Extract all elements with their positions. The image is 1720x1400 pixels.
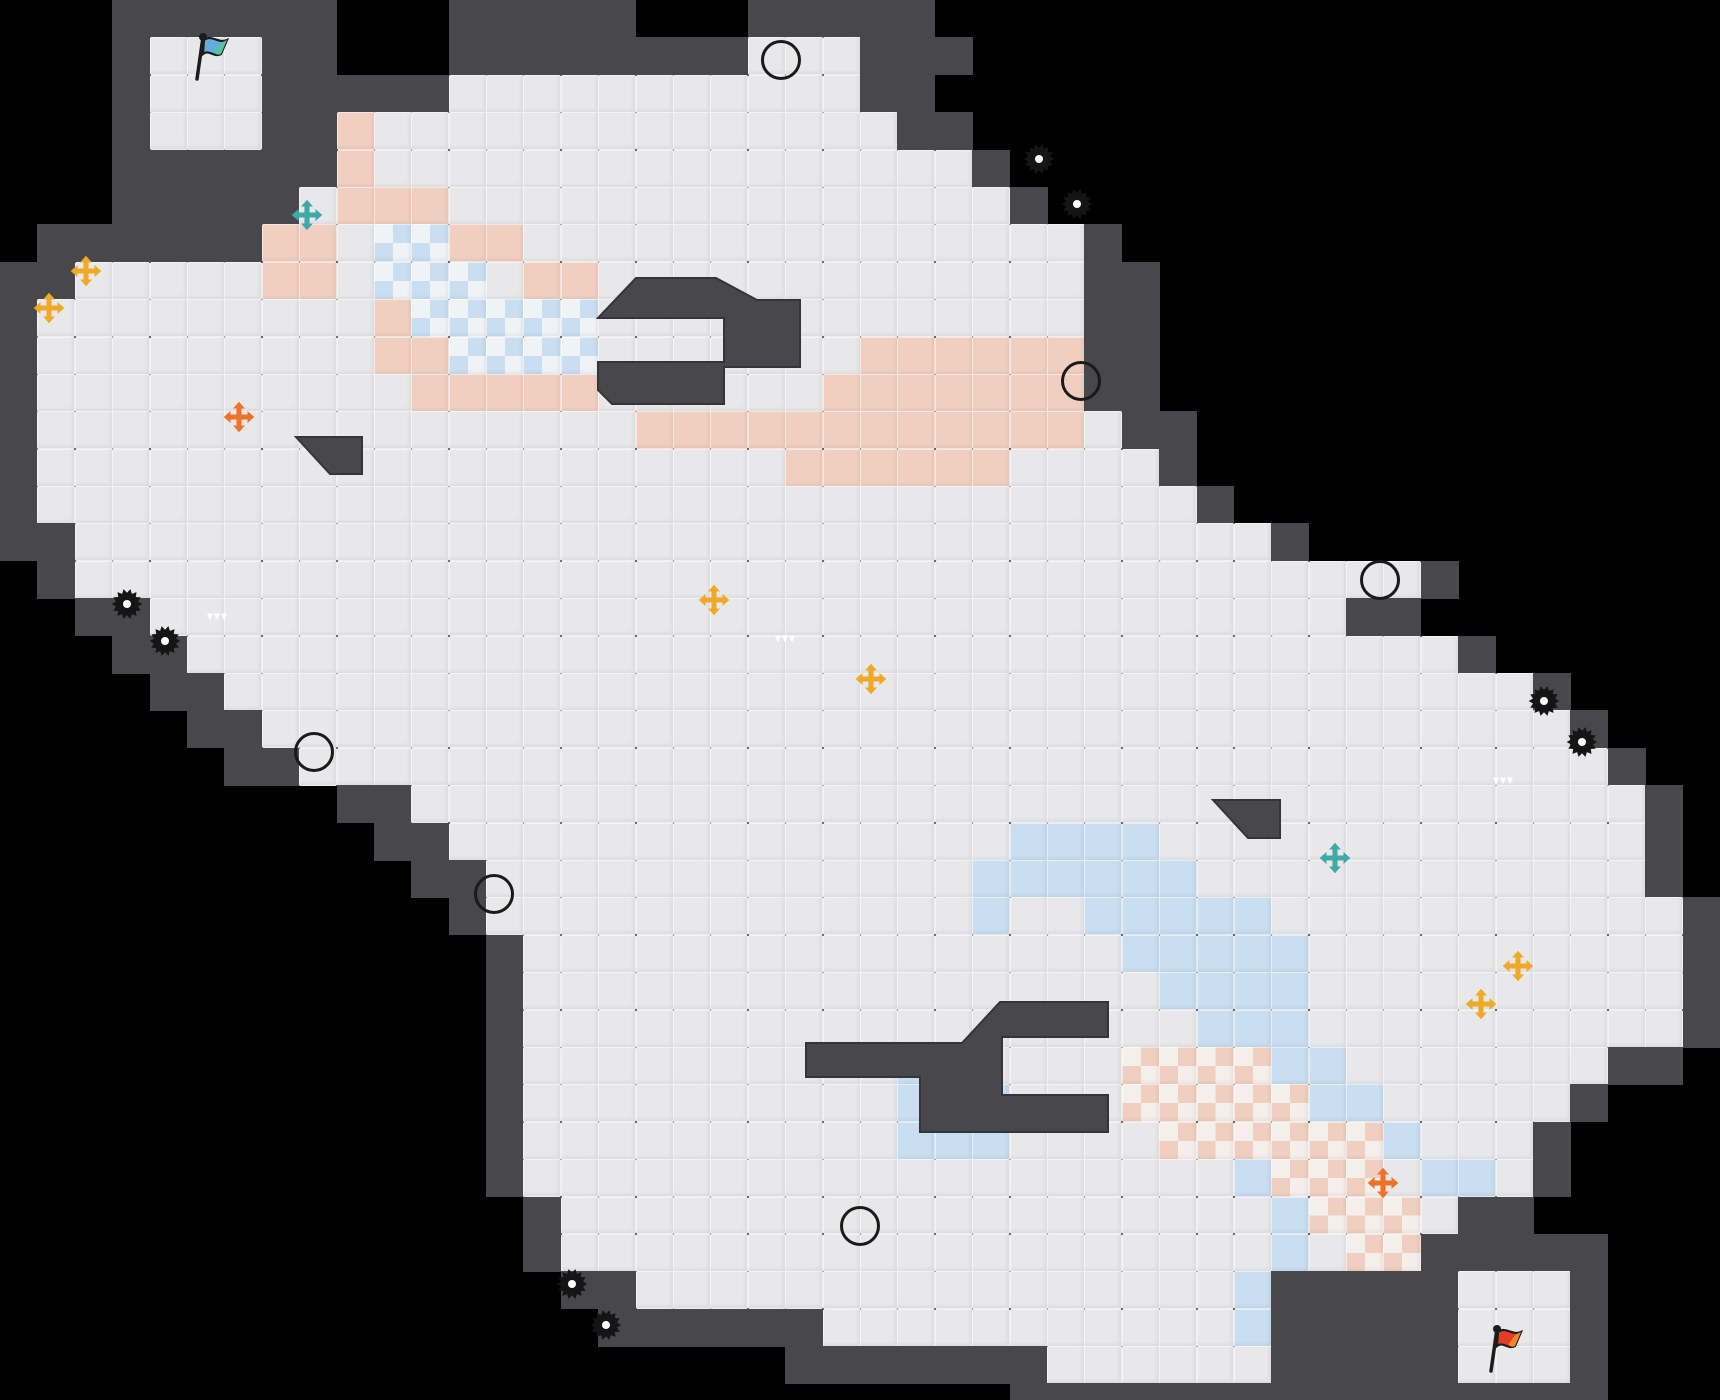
saw-gear-icon (556, 1268, 588, 1304)
saw-gear-icon (1528, 685, 1560, 721)
saw-gear-icon (1023, 143, 1055, 179)
boost-pad-icon[interactable] (774, 630, 796, 649)
teleport-cross-teal-icon[interactable] (1318, 841, 1352, 879)
boost-pad-icon[interactable] (1492, 772, 1514, 791)
wall-wedge-right (1213, 800, 1280, 838)
saw-gear-icon (111, 588, 143, 624)
saw-gear-icon (1566, 726, 1598, 762)
teleport-cross-gold-icon[interactable] (697, 583, 731, 621)
teleport-cross-orange-icon[interactable] (1366, 1166, 1400, 1204)
saw-gear-icon (1061, 188, 1093, 224)
bomb-icon[interactable] (840, 1206, 880, 1246)
bomb-icon[interactable] (761, 40, 801, 80)
game-map (0, 0, 1720, 1400)
wall-structures (0, 0, 1720, 1400)
flag-red-icon[interactable] (1482, 1323, 1524, 1377)
teleport-cross-orange-icon[interactable] (222, 400, 256, 438)
teleport-cross-gold-icon[interactable] (69, 254, 103, 292)
bomb-icon[interactable] (474, 874, 514, 914)
bomb-icon[interactable] (1061, 361, 1101, 401)
teleport-cross-gold-icon[interactable] (1501, 949, 1535, 987)
pocket-structure-top (598, 278, 800, 404)
teleport-cross-gold-icon[interactable] (32, 291, 66, 329)
teleport-cross-gold-icon[interactable] (1464, 987, 1498, 1025)
wall-wedge-left (296, 437, 362, 474)
teleport-cross-teal-icon[interactable] (290, 198, 324, 236)
saw-gear-icon (590, 1309, 622, 1345)
teleport-cross-gold-icon[interactable] (854, 662, 888, 700)
saw-gear-icon (149, 625, 181, 661)
boost-pad-icon[interactable] (206, 607, 228, 626)
flag-blue-icon[interactable] (188, 31, 230, 85)
bomb-icon[interactable] (294, 732, 334, 772)
bomb-icon[interactable] (1360, 560, 1400, 600)
pocket-structure-bottom (806, 1002, 1108, 1132)
